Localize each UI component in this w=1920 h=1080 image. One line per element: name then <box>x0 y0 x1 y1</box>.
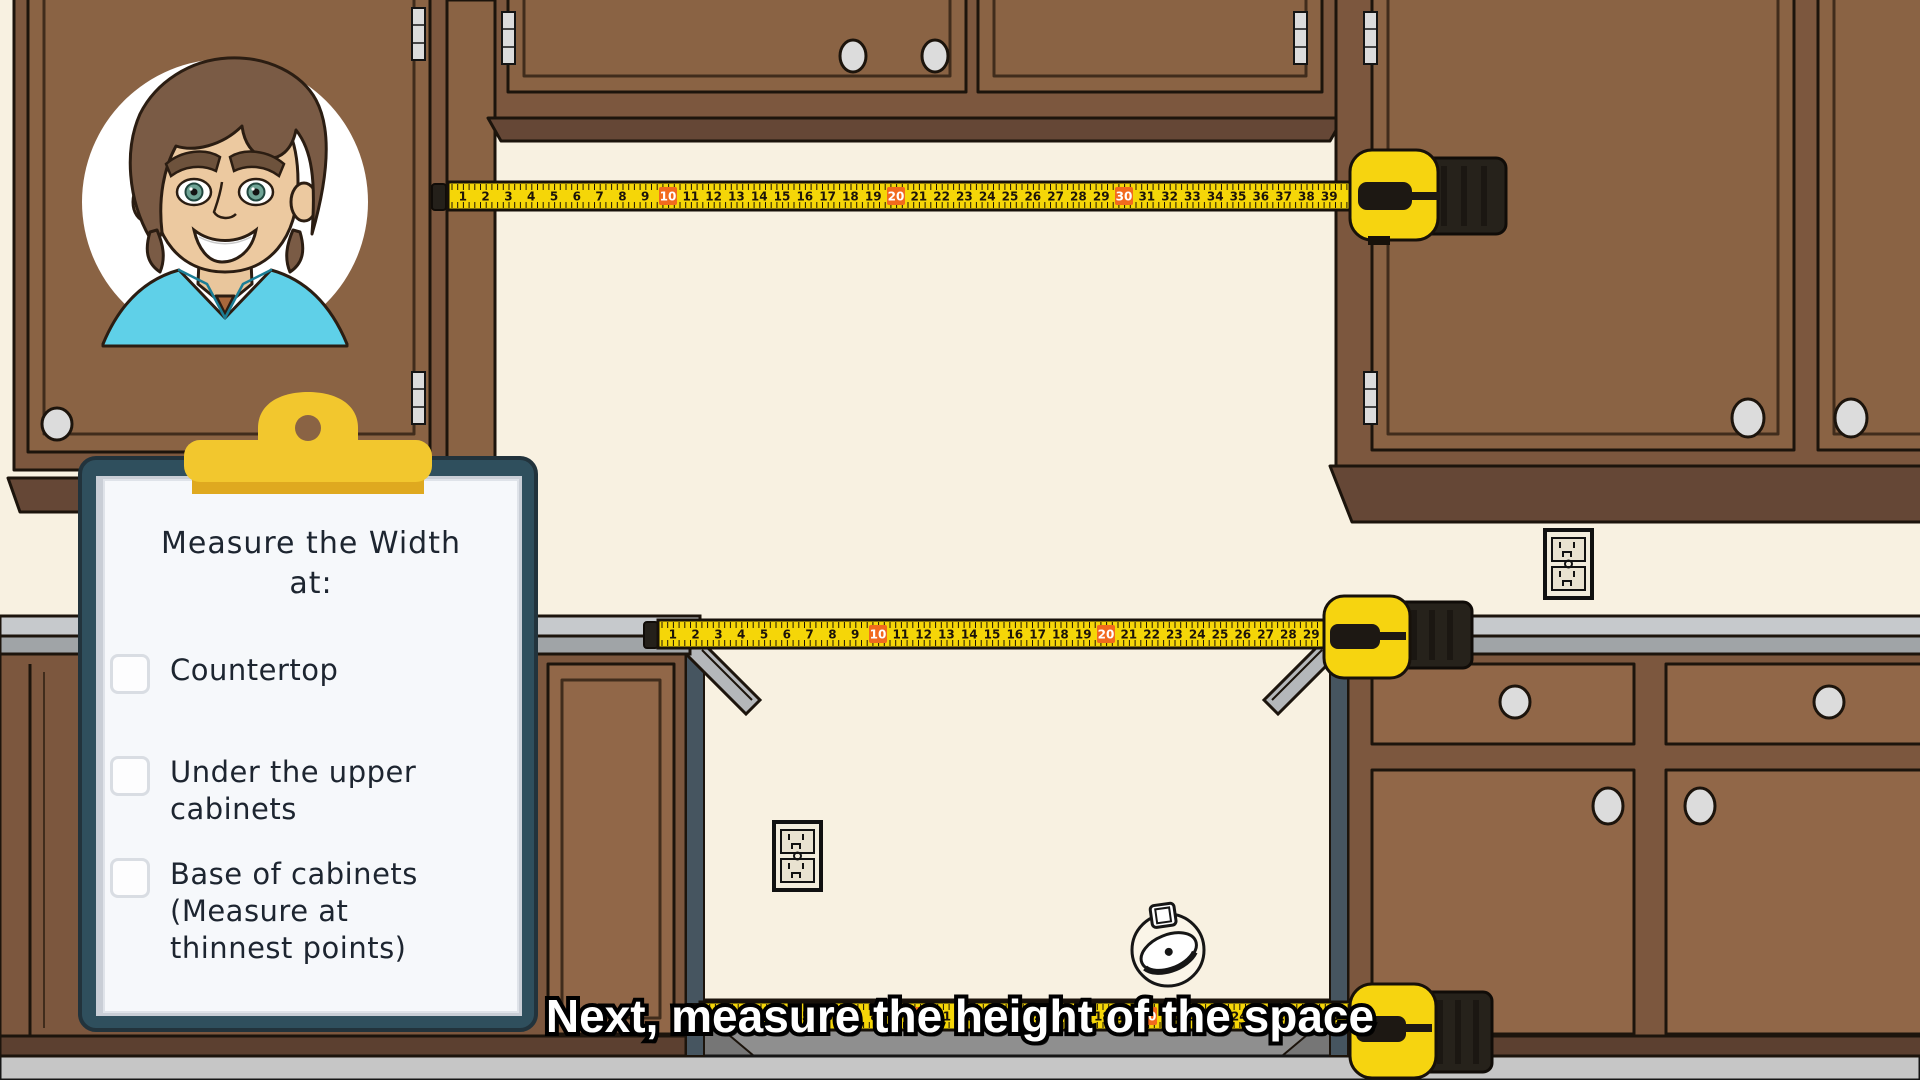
svg-text:12: 12 <box>915 628 932 642</box>
svg-text:34: 34 <box>1207 190 1224 204</box>
caption-text: Next, measure the height of the space <box>546 990 1374 1042</box>
cabinet-door <box>548 664 674 1034</box>
svg-text:11: 11 <box>682 190 699 204</box>
svg-text:7: 7 <box>595 190 603 204</box>
svg-text:1: 1 <box>459 190 467 204</box>
svg-text:39: 39 <box>1321 190 1338 204</box>
svg-text:37: 37 <box>1275 190 1292 204</box>
floor <box>0 1056 1920 1080</box>
cabinet-door <box>508 0 966 92</box>
cabinet-knob <box>1732 399 1764 437</box>
power-outlet-icon <box>1545 530 1592 598</box>
right-upper-cabinet <box>1330 0 1920 522</box>
svg-text:22: 22 <box>933 190 950 204</box>
tape-case-upper <box>1350 150 1506 245</box>
clip-hole <box>295 415 321 441</box>
checklist-item: Countertop <box>108 652 468 689</box>
svg-text:2: 2 <box>691 628 699 642</box>
svg-text:15: 15 <box>774 190 791 204</box>
tape-case-countertop <box>1324 596 1472 678</box>
svg-text:28: 28 <box>1280 628 1297 642</box>
cabinet-hinge <box>1364 12 1377 64</box>
cabinet-knob <box>922 40 948 72</box>
svg-text:19: 19 <box>865 190 882 204</box>
svg-text:9: 9 <box>851 628 859 642</box>
svg-text:26: 26 <box>1234 628 1251 642</box>
cabinet-hinge <box>412 8 425 60</box>
svg-text:36: 36 <box>1252 190 1269 204</box>
checklist-item-label: Under the upper cabinets <box>170 754 468 828</box>
svg-text:16: 16 <box>1006 628 1023 642</box>
checklist-item-label: Countertop <box>170 652 468 689</box>
svg-text:13: 13 <box>938 628 955 642</box>
tape-measure-upper: 1234567891011121314151617181920212223242… <box>432 182 1352 210</box>
checklist-item: Base of cabinets (Measure at thinnest po… <box>108 856 468 967</box>
checkbox-base-of-cabinets[interactable] <box>110 858 150 898</box>
cabinet-end-panel <box>447 0 495 496</box>
cabinet-knob <box>1835 399 1867 437</box>
tape-measure-countertop: 1234567891011121314151617181920212223242… <box>644 620 1330 648</box>
svg-text:13: 13 <box>728 190 745 204</box>
svg-text:8: 8 <box>828 628 836 642</box>
svg-text:12: 12 <box>705 190 722 204</box>
svg-text:23: 23 <box>1166 628 1183 642</box>
svg-text:18: 18 <box>1052 628 1069 642</box>
power-outlet-icon <box>774 822 821 890</box>
svg-text:17: 17 <box>819 190 836 204</box>
tutorial-frame: 1234567891011121314151617181920212223242… <box>0 0 1920 1080</box>
cabinet-knob <box>840 40 866 72</box>
svg-text:31: 31 <box>1138 190 1155 204</box>
svg-text:20: 20 <box>1098 628 1115 642</box>
svg-text:11: 11 <box>892 628 909 642</box>
cabinet-knob <box>42 408 72 440</box>
svg-text:14: 14 <box>961 628 978 642</box>
svg-text:10: 10 <box>870 628 887 642</box>
svg-text:28: 28 <box>1070 190 1087 204</box>
svg-text:22: 22 <box>1143 628 1160 642</box>
cabinet-hinge <box>1364 372 1377 424</box>
svg-text:32: 32 <box>1161 190 1178 204</box>
svg-text:3: 3 <box>714 628 722 642</box>
cabinet-molding <box>1330 466 1920 522</box>
svg-text:26: 26 <box>1024 190 1041 204</box>
svg-text:6: 6 <box>573 190 581 204</box>
svg-text:17: 17 <box>1029 628 1046 642</box>
svg-text:6: 6 <box>783 628 791 642</box>
svg-text:21: 21 <box>910 190 927 204</box>
svg-text:7: 7 <box>805 628 813 642</box>
svg-text:4: 4 <box>737 628 745 642</box>
svg-text:19: 19 <box>1075 628 1092 642</box>
svg-text:29: 29 <box>1303 628 1320 642</box>
svg-text:10: 10 <box>660 190 677 204</box>
presenter-avatar <box>82 58 368 346</box>
svg-text:20: 20 <box>888 190 905 204</box>
svg-text:27: 27 <box>1047 190 1064 204</box>
svg-text:23: 23 <box>956 190 973 204</box>
svg-text:24: 24 <box>1189 628 1206 642</box>
svg-text:21: 21 <box>1120 628 1137 642</box>
clipboard-checklist: Measure the Width at: Countertop Under t… <box>104 480 518 1012</box>
cabinet-knob <box>1685 788 1715 824</box>
svg-text:30: 30 <box>1116 190 1133 204</box>
svg-text:5: 5 <box>550 190 558 204</box>
svg-text:24: 24 <box>979 190 996 204</box>
cabinet-knob <box>1593 788 1623 824</box>
svg-text:15: 15 <box>984 628 1001 642</box>
drawer <box>1666 664 1920 744</box>
svg-text:18: 18 <box>842 190 859 204</box>
checklist-item-label: Base of cabinets (Measure at thinnest po… <box>170 856 468 967</box>
svg-text:33: 33 <box>1184 190 1201 204</box>
svg-text:14: 14 <box>751 190 768 204</box>
cabinet-hinge <box>1294 12 1307 64</box>
svg-text:8: 8 <box>618 190 626 204</box>
svg-text:35: 35 <box>1230 190 1247 204</box>
clip <box>184 440 432 482</box>
svg-text:27: 27 <box>1257 628 1274 642</box>
checklist-item: Under the upper cabinets <box>108 754 468 828</box>
checklist-title: Measure the Width at: <box>104 524 518 604</box>
svg-text:38: 38 <box>1298 190 1315 204</box>
svg-text:16: 16 <box>796 190 813 204</box>
checkbox-countertop[interactable] <box>110 654 150 694</box>
svg-text:9: 9 <box>641 190 649 204</box>
cabinet-hinge <box>502 12 515 64</box>
svg-text:2: 2 <box>481 190 489 204</box>
svg-text:25: 25 <box>1002 190 1019 204</box>
cabinet-knob <box>1500 686 1530 718</box>
checkbox-under-upper-cabinets[interactable] <box>110 756 150 796</box>
cabinet-molding <box>488 118 1343 141</box>
cabinet-door <box>978 0 1322 92</box>
top-middle-cabinet <box>488 0 1343 141</box>
svg-text:4: 4 <box>527 190 535 204</box>
svg-text:3: 3 <box>504 190 512 204</box>
svg-text:1: 1 <box>669 628 677 642</box>
cabinet-hinge <box>412 372 425 424</box>
cabinet-knob <box>1814 686 1844 718</box>
caption: Next, measure the height of the space Ne… <box>546 990 1377 1046</box>
svg-text:29: 29 <box>1093 190 1110 204</box>
svg-text:5: 5 <box>760 628 768 642</box>
svg-text:25: 25 <box>1212 628 1229 642</box>
